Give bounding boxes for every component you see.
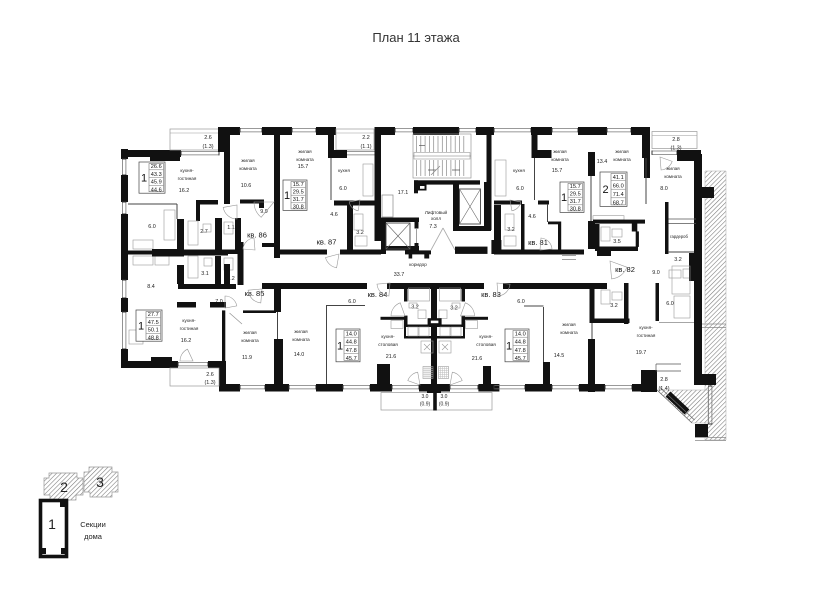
svg-text:30.8: 30.8 <box>570 207 581 213</box>
svg-text:2.6: 2.6 <box>206 372 214 378</box>
svg-text:9.0: 9.0 <box>652 270 660 276</box>
svg-text:14.0: 14.0 <box>346 331 357 337</box>
svg-text:6.0: 6.0 <box>516 186 524 192</box>
svg-text:45.9: 45.9 <box>151 180 162 186</box>
svg-text:3.1: 3.1 <box>201 271 209 277</box>
svg-text:3.2: 3.2 <box>356 230 364 236</box>
svg-text:жилая: жилая <box>241 158 255 163</box>
svg-text:71.4: 71.4 <box>613 192 624 198</box>
svg-text:6.0: 6.0 <box>348 299 356 305</box>
svg-text:50.1: 50.1 <box>148 328 159 334</box>
svg-text:1: 1 <box>561 192 567 204</box>
svg-text:3: 3 <box>96 474 104 490</box>
svg-text:2.6: 2.6 <box>204 135 212 141</box>
svg-text:7.3: 7.3 <box>429 224 437 230</box>
svg-text:17.1: 17.1 <box>398 190 409 196</box>
svg-text:47.8: 47.8 <box>515 348 526 354</box>
svg-text:жилая: жилая <box>666 166 680 171</box>
svg-text:(1.4): (1.4) <box>658 386 669 392</box>
svg-text:жилая: жилая <box>298 149 312 154</box>
svg-text:45.7: 45.7 <box>346 356 357 362</box>
svg-text:15.7: 15.7 <box>570 184 581 190</box>
svg-text:4.6: 4.6 <box>528 214 536 220</box>
svg-text:кухня-: кухня- <box>381 334 395 339</box>
svg-text:15.7: 15.7 <box>552 168 563 174</box>
svg-text:8.0: 8.0 <box>660 186 668 192</box>
svg-text:2.8: 2.8 <box>672 137 680 143</box>
svg-text:21.6: 21.6 <box>472 356 483 362</box>
svg-text:6.0: 6.0 <box>339 186 347 192</box>
svg-text:гардероб: гардероб <box>670 234 688 239</box>
svg-text:жилая: жилая <box>615 149 629 154</box>
svg-text:кв. 86: кв. 86 <box>247 231 267 240</box>
svg-text:комната: комната <box>664 174 682 179</box>
svg-text:15.7: 15.7 <box>293 182 304 188</box>
svg-text:(1.1): (1.1) <box>360 144 371 150</box>
svg-text:6.0: 6.0 <box>148 224 156 230</box>
svg-text:кухня-: кухня- <box>479 334 493 339</box>
svg-text:гостиная: гостиная <box>180 326 199 331</box>
svg-text:10.6: 10.6 <box>241 183 252 189</box>
svg-text:13.4: 13.4 <box>597 159 608 165</box>
svg-text:11.9: 11.9 <box>242 355 252 361</box>
svg-text:3.2: 3.2 <box>674 257 682 263</box>
svg-text:комната: комната <box>241 338 259 343</box>
svg-text:16.2: 16.2 <box>179 188 190 194</box>
svg-text:19.7: 19.7 <box>636 350 647 356</box>
svg-text:2.8: 2.8 <box>660 377 668 383</box>
svg-text:жилая: жилая <box>562 322 576 327</box>
svg-text:1: 1 <box>141 173 147 185</box>
svg-text:66.0: 66.0 <box>613 183 624 189</box>
svg-text:1: 1 <box>506 340 512 352</box>
svg-text:3.2: 3.2 <box>411 305 419 311</box>
svg-text:кухня-: кухня- <box>180 168 194 173</box>
svg-text:3.2: 3.2 <box>610 303 618 309</box>
svg-text:14.5: 14.5 <box>554 353 565 359</box>
svg-text:2.2: 2.2 <box>362 135 370 141</box>
svg-text:6.0: 6.0 <box>517 299 525 305</box>
svg-text:4.6: 4.6 <box>330 212 338 218</box>
svg-text:кухня-: кухня- <box>639 325 653 330</box>
svg-text:жилая: жилая <box>294 329 308 334</box>
svg-text:жилая: жилая <box>243 330 257 335</box>
svg-text:кухня: кухня <box>513 168 525 173</box>
svg-text:кв. 81: кв. 81 <box>528 238 548 247</box>
svg-text:План 11 этажа: План 11 этажа <box>372 30 460 45</box>
svg-text:14.0: 14.0 <box>515 331 526 337</box>
svg-text:комната: комната <box>292 337 310 342</box>
svg-text:2: 2 <box>60 479 68 495</box>
svg-text:44.8: 44.8 <box>346 340 357 346</box>
svg-text:Секции: Секции <box>80 520 106 529</box>
svg-text:комната: комната <box>560 330 578 335</box>
svg-text:кв. 87: кв. 87 <box>317 238 337 247</box>
svg-text:гостиная: гостиная <box>637 333 656 338</box>
svg-text:1: 1 <box>138 321 144 333</box>
svg-text:27.7: 27.7 <box>148 312 159 318</box>
svg-text:кухня-: кухня- <box>182 318 196 323</box>
svg-text:26.6: 26.6 <box>151 164 162 170</box>
svg-text:комната: комната <box>613 157 631 162</box>
svg-text:3.0: 3.0 <box>422 394 429 400</box>
svg-text:15.7: 15.7 <box>298 164 309 170</box>
svg-text:кухня: кухня <box>338 168 350 173</box>
svg-text:холл: холл <box>431 216 441 221</box>
svg-text:1: 1 <box>337 340 343 352</box>
svg-text:1: 1 <box>284 190 290 202</box>
svg-text:21.6: 21.6 <box>386 354 397 360</box>
svg-text:44.6: 44.6 <box>151 187 162 193</box>
svg-text:комната: комната <box>239 166 257 171</box>
svg-text:41.1: 41.1 <box>613 175 624 181</box>
svg-text:дома: дома <box>84 532 103 541</box>
svg-text:(1.3): (1.3) <box>204 380 215 386</box>
svg-text:8.4: 8.4 <box>147 284 155 290</box>
svg-text:кв. 84: кв. 84 <box>368 290 388 299</box>
svg-text:48.8: 48.8 <box>148 335 159 341</box>
svg-text:6.0: 6.0 <box>666 301 674 307</box>
svg-text:29.5: 29.5 <box>570 191 581 197</box>
svg-text:3.5: 3.5 <box>613 239 621 245</box>
svg-text:45.7: 45.7 <box>515 356 526 362</box>
svg-text:1.1: 1.1 <box>227 225 235 231</box>
svg-text:жилая: жилая <box>553 149 567 154</box>
svg-text:комната: комната <box>551 157 569 162</box>
svg-text:29.5: 29.5 <box>293 189 304 195</box>
svg-text:3.2: 3.2 <box>450 306 458 312</box>
svg-text:68.7: 68.7 <box>613 201 624 207</box>
svg-text:(0.9): (0.9) <box>420 402 431 408</box>
svg-text:3.0: 3.0 <box>441 394 448 400</box>
svg-text:33.7: 33.7 <box>394 272 405 278</box>
svg-text:1: 1 <box>48 516 56 532</box>
svg-text:31.7: 31.7 <box>570 199 581 205</box>
svg-text:14.0: 14.0 <box>294 352 305 358</box>
svg-text:47.5: 47.5 <box>148 320 159 326</box>
svg-text:Лифтовый: Лифтовый <box>425 209 448 215</box>
svg-text:2: 2 <box>602 184 608 196</box>
svg-text:гостиная: гостиная <box>178 176 197 181</box>
svg-text:столовая: столовая <box>476 342 496 347</box>
svg-text:43.3: 43.3 <box>151 172 162 178</box>
svg-text:30.8: 30.8 <box>293 205 304 211</box>
svg-text:комната: комната <box>296 157 314 162</box>
svg-text:16.2: 16.2 <box>181 338 192 344</box>
svg-text:коридор: коридор <box>409 262 427 267</box>
svg-text:(1.3): (1.3) <box>202 144 213 150</box>
svg-text:47.8: 47.8 <box>346 348 357 354</box>
svg-text:44.8: 44.8 <box>515 340 526 346</box>
svg-text:столовая: столовая <box>378 342 398 347</box>
svg-text:31.7: 31.7 <box>293 197 304 203</box>
svg-text:(0.9): (0.9) <box>439 402 450 408</box>
